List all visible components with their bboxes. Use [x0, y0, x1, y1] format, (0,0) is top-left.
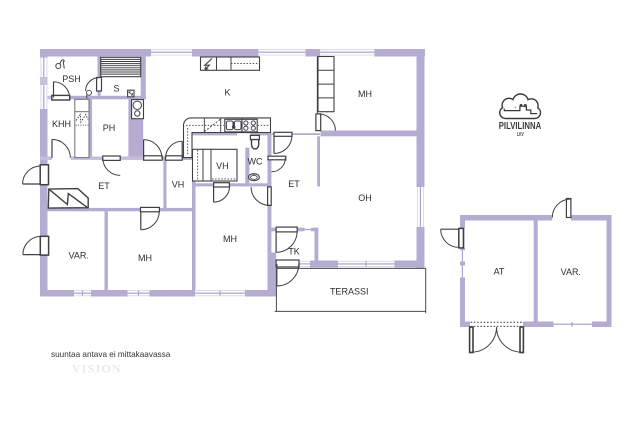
svg-text:TK: TK: [288, 247, 300, 257]
svg-text:VISION: VISION: [72, 362, 122, 376]
svg-text:VAR.: VAR.: [69, 251, 89, 261]
svg-text:AT: AT: [494, 267, 505, 277]
svg-text:MH: MH: [138, 253, 152, 263]
svg-text:VAR.: VAR.: [561, 267, 581, 277]
svg-text:MH: MH: [223, 234, 237, 244]
svg-text:KHH: KHH: [52, 119, 71, 129]
svg-text:MH: MH: [358, 89, 372, 99]
svg-text:PSH: PSH: [62, 74, 81, 84]
svg-text:VH: VH: [216, 161, 229, 171]
svg-text:LKV: LKV: [517, 131, 524, 137]
svg-text:VH: VH: [172, 180, 185, 190]
svg-text:PH: PH: [103, 123, 116, 133]
svg-text:K: K: [224, 88, 230, 98]
svg-text:WC: WC: [248, 157, 263, 167]
svg-text:TERASSI: TERASSI: [330, 287, 369, 297]
svg-text:S: S: [113, 84, 119, 94]
svg-text:ET: ET: [288, 179, 300, 189]
svg-text:PILVILINNA: PILVILINNA: [499, 120, 542, 131]
svg-text:ET: ET: [98, 181, 110, 191]
svg-text:suuntaa antava ei mittakaavass: suuntaa antava ei mittakaavassa: [51, 350, 171, 359]
svg-text:OH: OH: [358, 193, 372, 203]
